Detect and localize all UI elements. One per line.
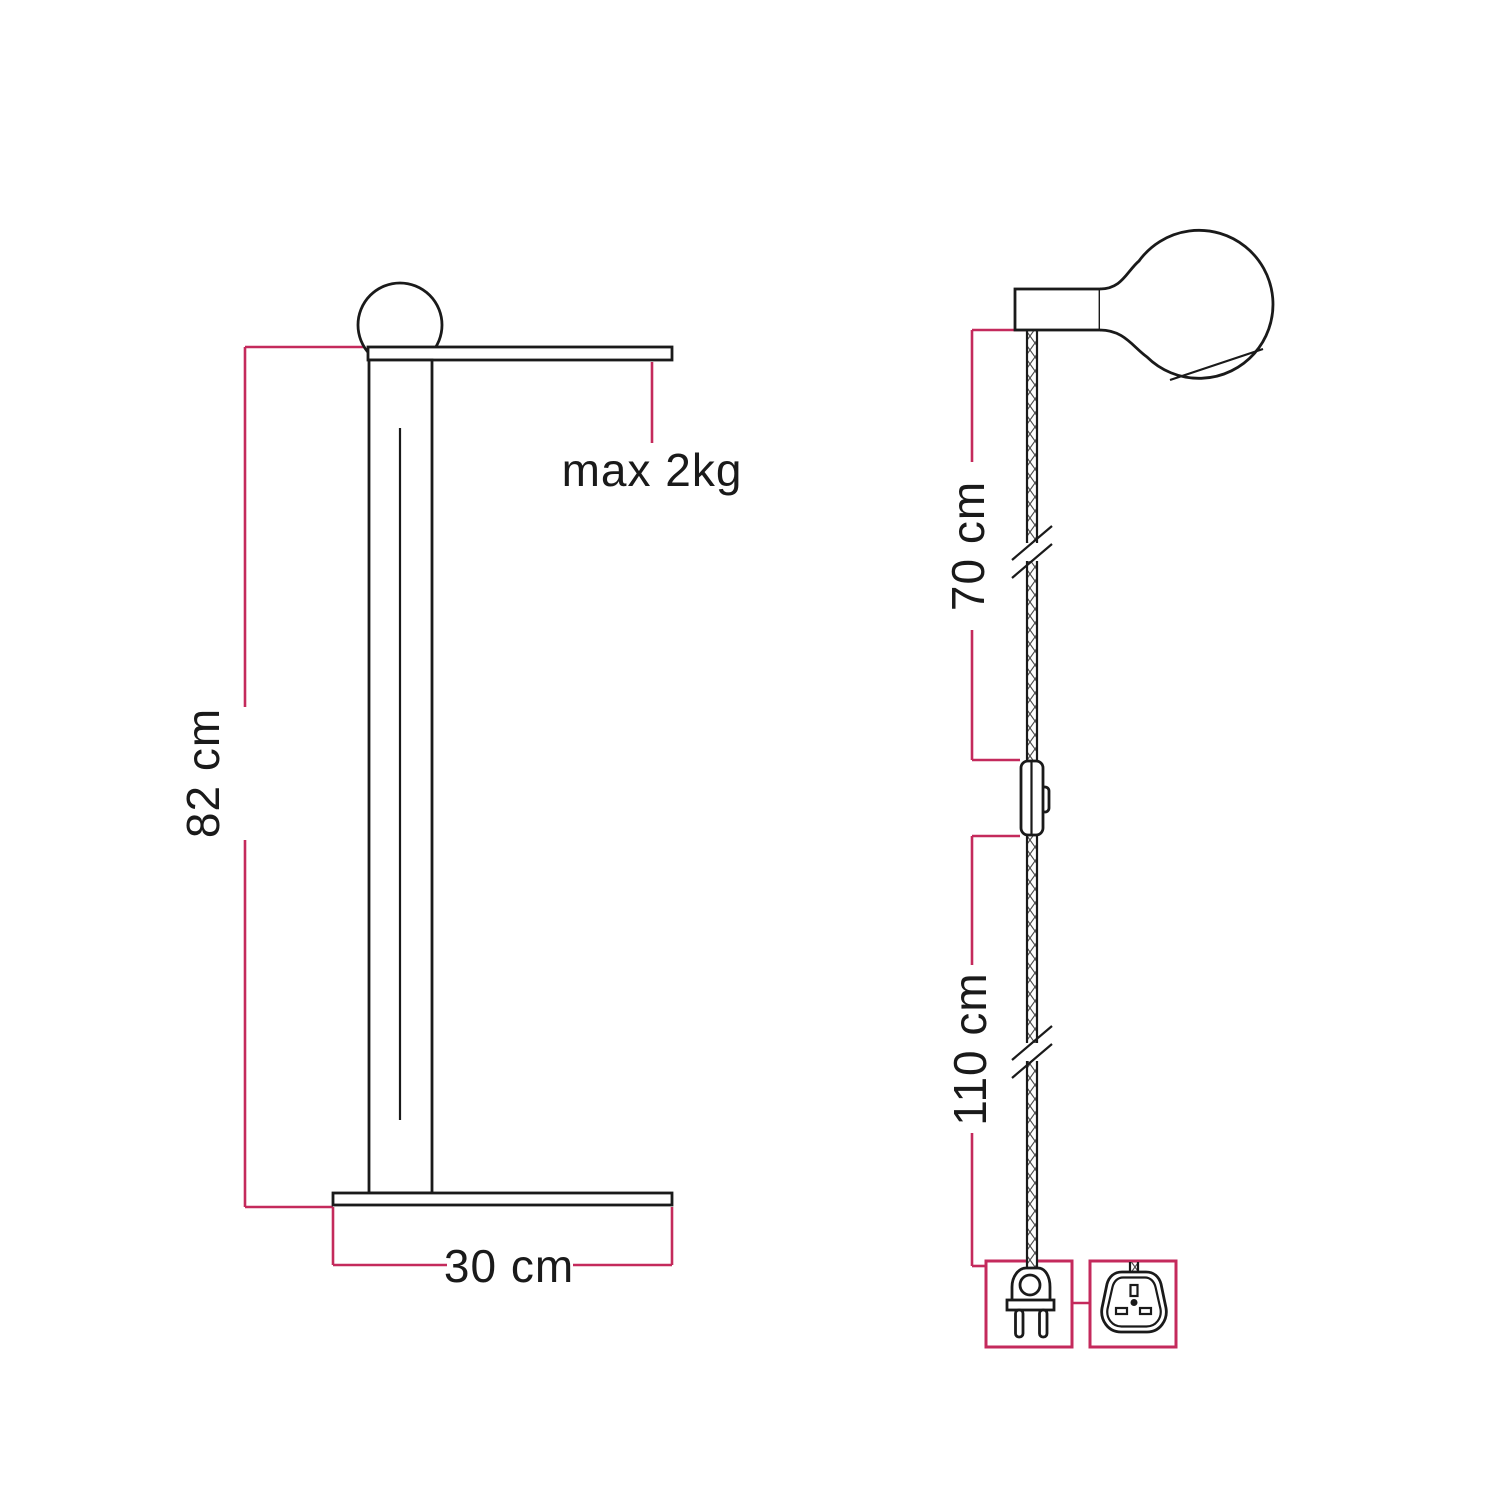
height-dimension-label: 82 cm	[176, 708, 230, 838]
right-dimension-lines	[972, 330, 1176, 1347]
pendant-lamp-drawing	[1007, 230, 1273, 1337]
globe-bulb-icon	[1100, 230, 1273, 378]
dimension-diagram-canvas: 82 cm 30 cm max 2kg 70 cm 110 cm	[0, 0, 1500, 1500]
uk-plug-center-dot	[1131, 1299, 1138, 1306]
lamp-shelf	[368, 347, 672, 360]
floor-lamp-drawing	[333, 283, 672, 1205]
max-load-label: max 2kg	[562, 443, 743, 497]
cable-lower-dimension-label: 110 cm	[943, 972, 997, 1125]
uk-plug-icon	[1102, 1262, 1167, 1332]
inline-switch-icon	[1021, 761, 1049, 835]
cable-upper-dimension-label: 70 cm	[941, 481, 995, 611]
base-width-dimension-label: 30 cm	[444, 1239, 574, 1293]
lamp-base	[333, 1193, 672, 1205]
lamp-holder-icon	[1015, 289, 1100, 330]
two-pin-euro-plug-icon	[1007, 1268, 1054, 1337]
